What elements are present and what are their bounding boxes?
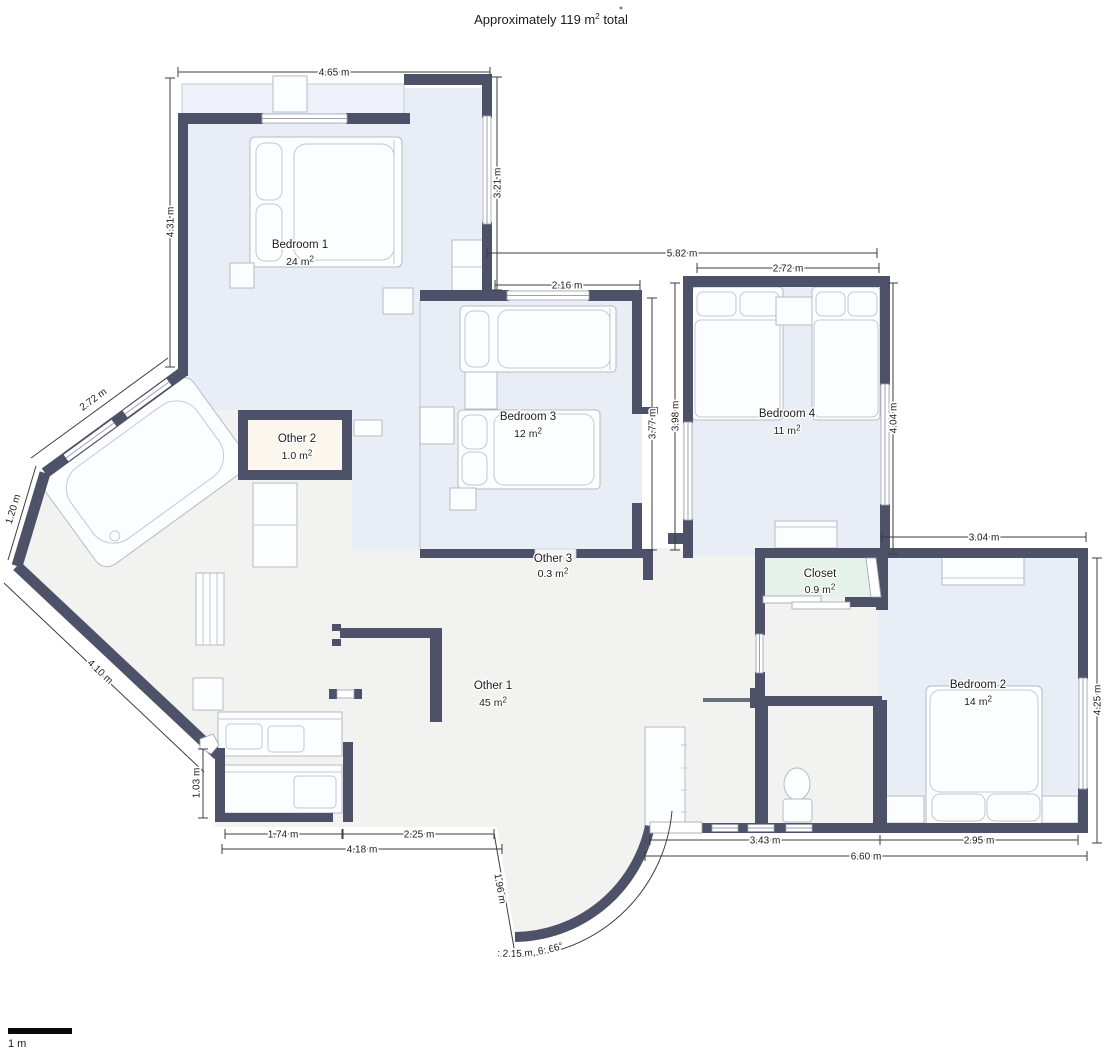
hall-door <box>329 689 362 699</box>
bedroom3-desk <box>420 407 454 444</box>
plan-title: Approximately 119 m2 total <box>474 12 628 27</box>
svg-text:4.04 m: 4.04 m <box>889 403 900 434</box>
svg-text:3.21 m: 3.21 m <box>493 168 504 199</box>
dimension-bottom-right-total: 6.60 m <box>645 851 1087 863</box>
svg-text:1.96 m: 1.96 m <box>491 873 507 905</box>
hall-radiator <box>196 573 224 645</box>
plan-title-pre: Approximately 119 m <box>474 12 595 27</box>
dimension-bottom-left-total: 4.18 m <box>222 844 502 856</box>
svg-text:Other 2: Other 2 <box>278 433 316 445</box>
svg-text:Bedroom 3: Bedroom 3 <box>500 411 556 423</box>
svg-text:Other 1: Other 1 <box>474 680 512 692</box>
svg-text:2.25 m: 2.25 m <box>404 830 435 841</box>
bay-dresser <box>273 76 307 112</box>
svg-text:2.72 m: 2.72 m <box>773 264 804 275</box>
svg-text:4.18 m: 4.18 m <box>347 845 378 856</box>
svg-text:Bedroom 2: Bedroom 2 <box>950 679 1006 691</box>
plan-title-post: total <box>600 12 628 27</box>
bedroom1-dresser <box>452 240 484 294</box>
dimension-b1-left: 4.31 m <box>165 78 177 367</box>
svg-text:2.72 m: 2.72 m <box>78 387 109 414</box>
svg-text:2.16 m: 2.16 m <box>552 281 583 292</box>
dimension-toilet-bottom: 3.43 m <box>650 835 880 847</box>
dimension-kitchen-left: 1.03 m <box>192 749 209 818</box>
svg-text:1.03 m: 1.03 m <box>192 768 203 799</box>
svg-text:4.65 m: 4.65 m <box>319 68 350 79</box>
dimension-b2-top: 3.04 m <box>882 532 1086 544</box>
dimension-span-mid: 5.82 m <box>487 248 877 260</box>
bedroom3-nightstand <box>465 372 497 409</box>
dimension-b3-top: 2.16 m <box>495 280 640 292</box>
bedroom2-nightstand-right <box>1042 796 1078 823</box>
svg-text:Bedroom 1: Bedroom 1 <box>272 239 328 251</box>
svg-text:Closet: Closet <box>804 568 837 580</box>
svg-text:5.82 m: 5.82 m <box>667 249 698 260</box>
floor-plan-canvas: Approximately 119 m2 total <box>0 0 1104 1056</box>
dimension-b4-top: 2.72 m <box>697 263 879 275</box>
svg-text:Bedroom 4: Bedroom 4 <box>759 408 816 420</box>
svg-text:3.43 m: 3.43 m <box>750 836 781 847</box>
bedroom4-bed-left <box>692 287 783 420</box>
dimension-kitchen-bottom: 1.74 m <box>225 829 342 841</box>
svg-text:2.95 m: 2.95 m <box>964 836 995 847</box>
bedroom4-bed-right <box>812 287 880 420</box>
svg-text:4.25 m: 4.25 m <box>1093 685 1104 716</box>
scale-bar-rule <box>8 1028 72 1034</box>
svg-text:3.04 m: 3.04 m <box>969 533 1000 544</box>
tall-cabinet <box>253 483 297 567</box>
scale-bar-label: 1 m <box>8 1038 26 1050</box>
scale-bar: 1 m <box>8 1028 72 1050</box>
bedroom3-table <box>450 488 476 510</box>
bedroom2-nightstand-left <box>884 796 924 823</box>
svg-text:1.74 m: 1.74 m <box>268 830 299 841</box>
svg-text:1.20 m: 1.20 m <box>4 493 23 525</box>
other2-shelf <box>354 420 382 436</box>
bedroom2-dresser <box>942 557 1024 585</box>
bedroom4-dresser <box>775 521 837 548</box>
dimension-b2-bottom: 2.95 m <box>880 835 1078 847</box>
bedroom1-nightstand <box>230 263 254 288</box>
dimension-hall-bottom: 2.25 m <box>343 829 494 841</box>
floor-plan-page: Approximately 119 m2 total <box>0 0 1104 1056</box>
svg-text:3.77 m: 3.77 m <box>648 409 659 440</box>
svg-text:6.60 m: 6.60 m <box>851 852 882 863</box>
dimension-b2-right: 4.25 m <box>1092 558 1104 843</box>
bedroom1-cabinet <box>383 288 413 314</box>
entry-door-opening <box>650 822 702 833</box>
floor-other2 <box>248 420 342 470</box>
bedroom4-nightstand <box>776 297 812 325</box>
hall-cabinet <box>193 678 223 710</box>
dimension-b3-right: 3.77 m <box>647 298 659 550</box>
dimension-b4-left: 3.98 m <box>670 283 682 550</box>
svg-text:Other 3: Other 3 <box>534 553 572 565</box>
bedroom3-bed-top <box>460 306 616 372</box>
svg-text:3.98 m: 3.98 m <box>671 401 682 432</box>
entry-shelf <box>645 727 687 827</box>
svg-text:4.31 m: 4.31 m <box>166 207 177 238</box>
stray-mark <box>620 7 623 10</box>
dimension-b1-right: 3.21 m <box>492 77 504 290</box>
svg-text:4.10 m: 4.10 m <box>85 658 115 687</box>
